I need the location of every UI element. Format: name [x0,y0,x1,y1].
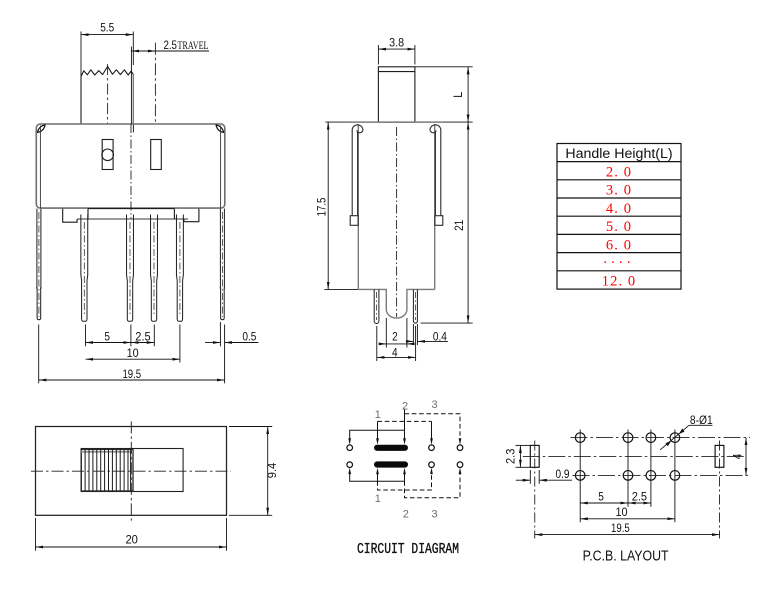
svg-text:2.5: 2.5 [163,38,177,52]
svg-text:3.8: 3.8 [389,36,404,50]
svg-text:12. 0: 12. 0 [602,273,637,289]
svg-text:3: 3 [431,399,437,411]
svg-text:....: .... [603,251,634,267]
svg-text:3. 0: 3. 0 [606,183,632,199]
svg-text:5. 0: 5. 0 [606,219,632,235]
svg-text:5: 5 [104,330,110,344]
svg-text:4: 4 [731,453,745,459]
svg-text:19.5: 19.5 [122,367,141,381]
svg-text:19.5: 19.5 [611,521,630,535]
svg-text:4. 0: 4. 0 [606,201,632,217]
svg-text:4: 4 [392,346,398,360]
svg-text:21: 21 [452,219,466,230]
svg-text:2.3: 2.3 [504,448,518,464]
svg-text:0.4: 0.4 [433,330,447,344]
svg-text:3: 3 [431,509,437,521]
svg-text:P.C.B. LAYOUT: P.C.B. LAYOUT [583,549,669,565]
svg-text:2: 2 [392,330,398,344]
svg-text:0.5: 0.5 [242,330,256,344]
svg-text:5.5: 5.5 [100,20,114,34]
svg-text:TRAVEL: TRAVEL [178,40,209,52]
svg-text:2. 0: 2. 0 [606,165,632,181]
svg-text:0.9: 0.9 [556,467,570,481]
svg-text:2: 2 [403,509,409,521]
svg-text:L: L [451,91,465,97]
svg-text:20: 20 [125,532,138,546]
svg-text:10: 10 [127,346,139,360]
svg-text:1: 1 [375,409,381,421]
svg-text:2.5: 2.5 [632,489,648,503]
svg-text:1: 1 [375,493,381,505]
svg-text:Handle Height(L): Handle Height(L) [565,146,672,162]
svg-text:10: 10 [615,505,627,519]
svg-text:9.4: 9.4 [265,463,279,479]
svg-text:5: 5 [598,489,604,503]
svg-text:2.5: 2.5 [135,330,151,344]
svg-text:2: 2 [402,400,408,412]
svg-text:8-Ø1: 8-Ø1 [690,413,713,427]
svg-text:17.5: 17.5 [314,197,328,216]
svg-text:CIRCUIT DIAGRAM: CIRCUIT DIAGRAM [357,542,459,558]
